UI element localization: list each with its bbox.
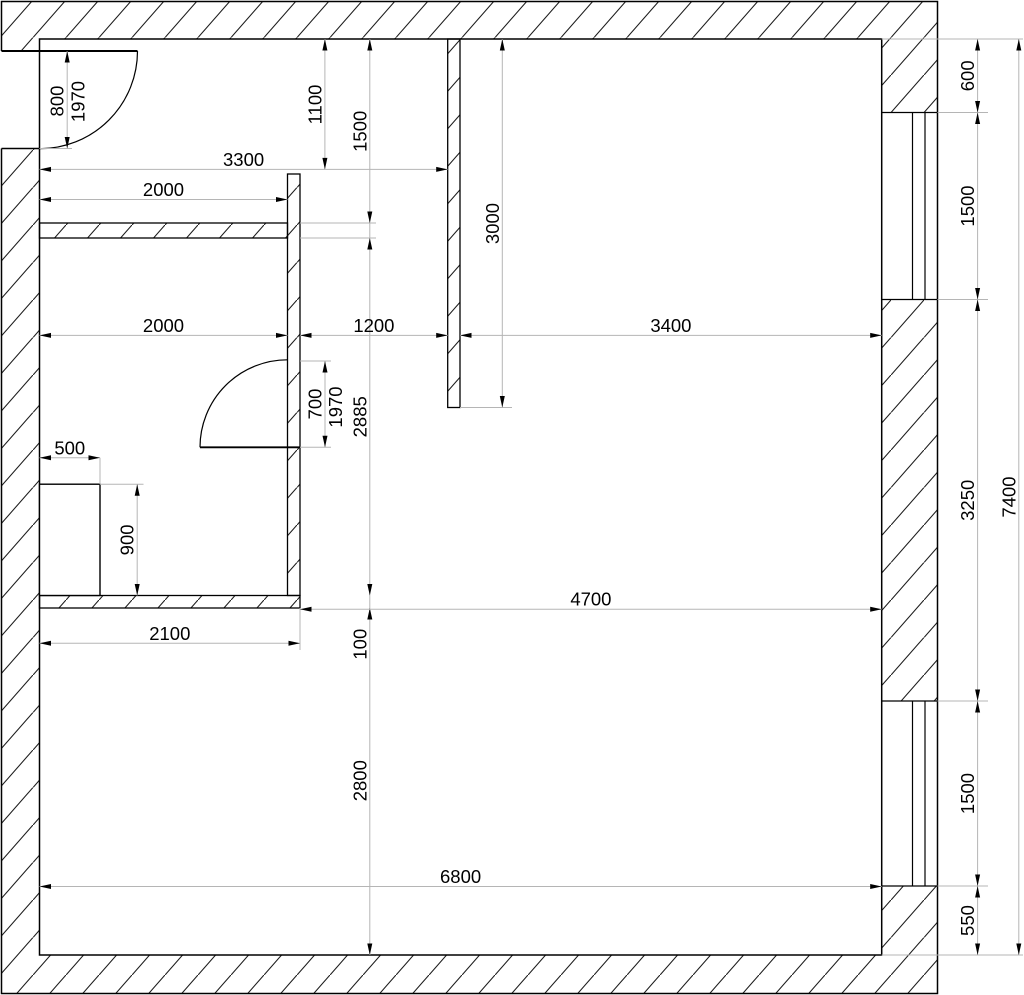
- svg-text:3300: 3300: [223, 149, 264, 170]
- svg-text:6800: 6800: [440, 866, 481, 887]
- svg-text:3250: 3250: [957, 480, 978, 521]
- svg-text:800: 800: [47, 86, 68, 117]
- svg-text:550: 550: [957, 905, 978, 936]
- svg-text:900: 900: [117, 524, 138, 555]
- svg-text:500: 500: [54, 437, 85, 458]
- svg-text:1500: 1500: [957, 185, 978, 226]
- svg-text:3400: 3400: [650, 315, 691, 336]
- svg-text:1970: 1970: [67, 81, 88, 122]
- svg-text:1500: 1500: [957, 773, 978, 814]
- svg-text:2885: 2885: [349, 396, 370, 437]
- svg-text:100: 100: [349, 629, 370, 660]
- svg-text:4700: 4700: [570, 589, 611, 610]
- svg-text:2800: 2800: [349, 760, 370, 801]
- svg-text:600: 600: [957, 60, 978, 91]
- svg-text:2000: 2000: [143, 179, 184, 200]
- svg-text:1200: 1200: [353, 315, 394, 336]
- svg-text:7400: 7400: [998, 476, 1019, 517]
- svg-text:2000: 2000: [143, 315, 184, 336]
- svg-text:3000: 3000: [482, 203, 503, 244]
- svg-text:700: 700: [305, 389, 326, 420]
- svg-text:1100: 1100: [304, 85, 325, 125]
- svg-text:1970: 1970: [325, 386, 346, 427]
- svg-text:2100: 2100: [149, 623, 190, 644]
- svg-text:1500: 1500: [349, 111, 370, 152]
